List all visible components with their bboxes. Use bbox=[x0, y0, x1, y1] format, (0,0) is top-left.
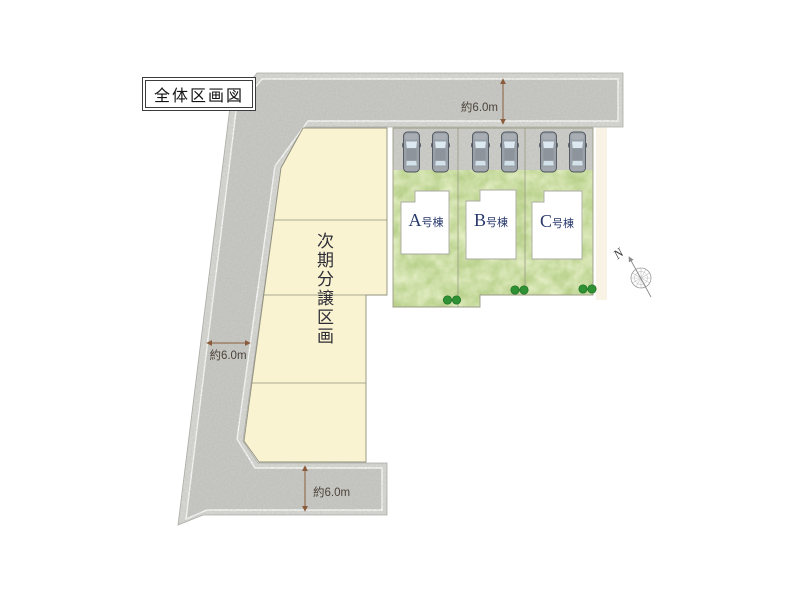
plan-title-box: 全体区画図 bbox=[142, 77, 256, 111]
parking-texture bbox=[393, 128, 593, 170]
car-icon bbox=[539, 132, 558, 172]
page-title: 全体区画図 bbox=[145, 80, 253, 108]
next-phase-label: 次期分譲区画 bbox=[315, 232, 332, 346]
site-plan-drawing: A号棟 B号棟 C号棟 約6.0m 約6.0m bbox=[0, 0, 800, 599]
bush-icon bbox=[511, 286, 519, 294]
car-icon bbox=[471, 132, 490, 172]
dimension-label-bottom: 約6.0m bbox=[313, 485, 350, 499]
car-icon bbox=[402, 132, 421, 172]
site-plan-page: A号棟 B号棟 C号棟 約6.0m 約6.0m bbox=[0, 0, 800, 599]
dimension-label-top: 約6.0m bbox=[461, 100, 498, 114]
car-icon bbox=[568, 132, 587, 172]
compass: N bbox=[609, 244, 651, 297]
compass-north-label: N bbox=[609, 244, 627, 263]
bush-icon bbox=[520, 286, 528, 294]
dimension-label-left: 約6.0m bbox=[209, 348, 246, 362]
bush-icon bbox=[443, 296, 451, 304]
bush-icon bbox=[588, 285, 596, 293]
car-icon bbox=[431, 132, 450, 172]
bush-icon bbox=[452, 296, 460, 304]
bush-icon bbox=[579, 285, 587, 293]
car-icon bbox=[500, 132, 519, 172]
parking-area bbox=[393, 128, 593, 170]
north-arrow-icon bbox=[629, 257, 651, 297]
